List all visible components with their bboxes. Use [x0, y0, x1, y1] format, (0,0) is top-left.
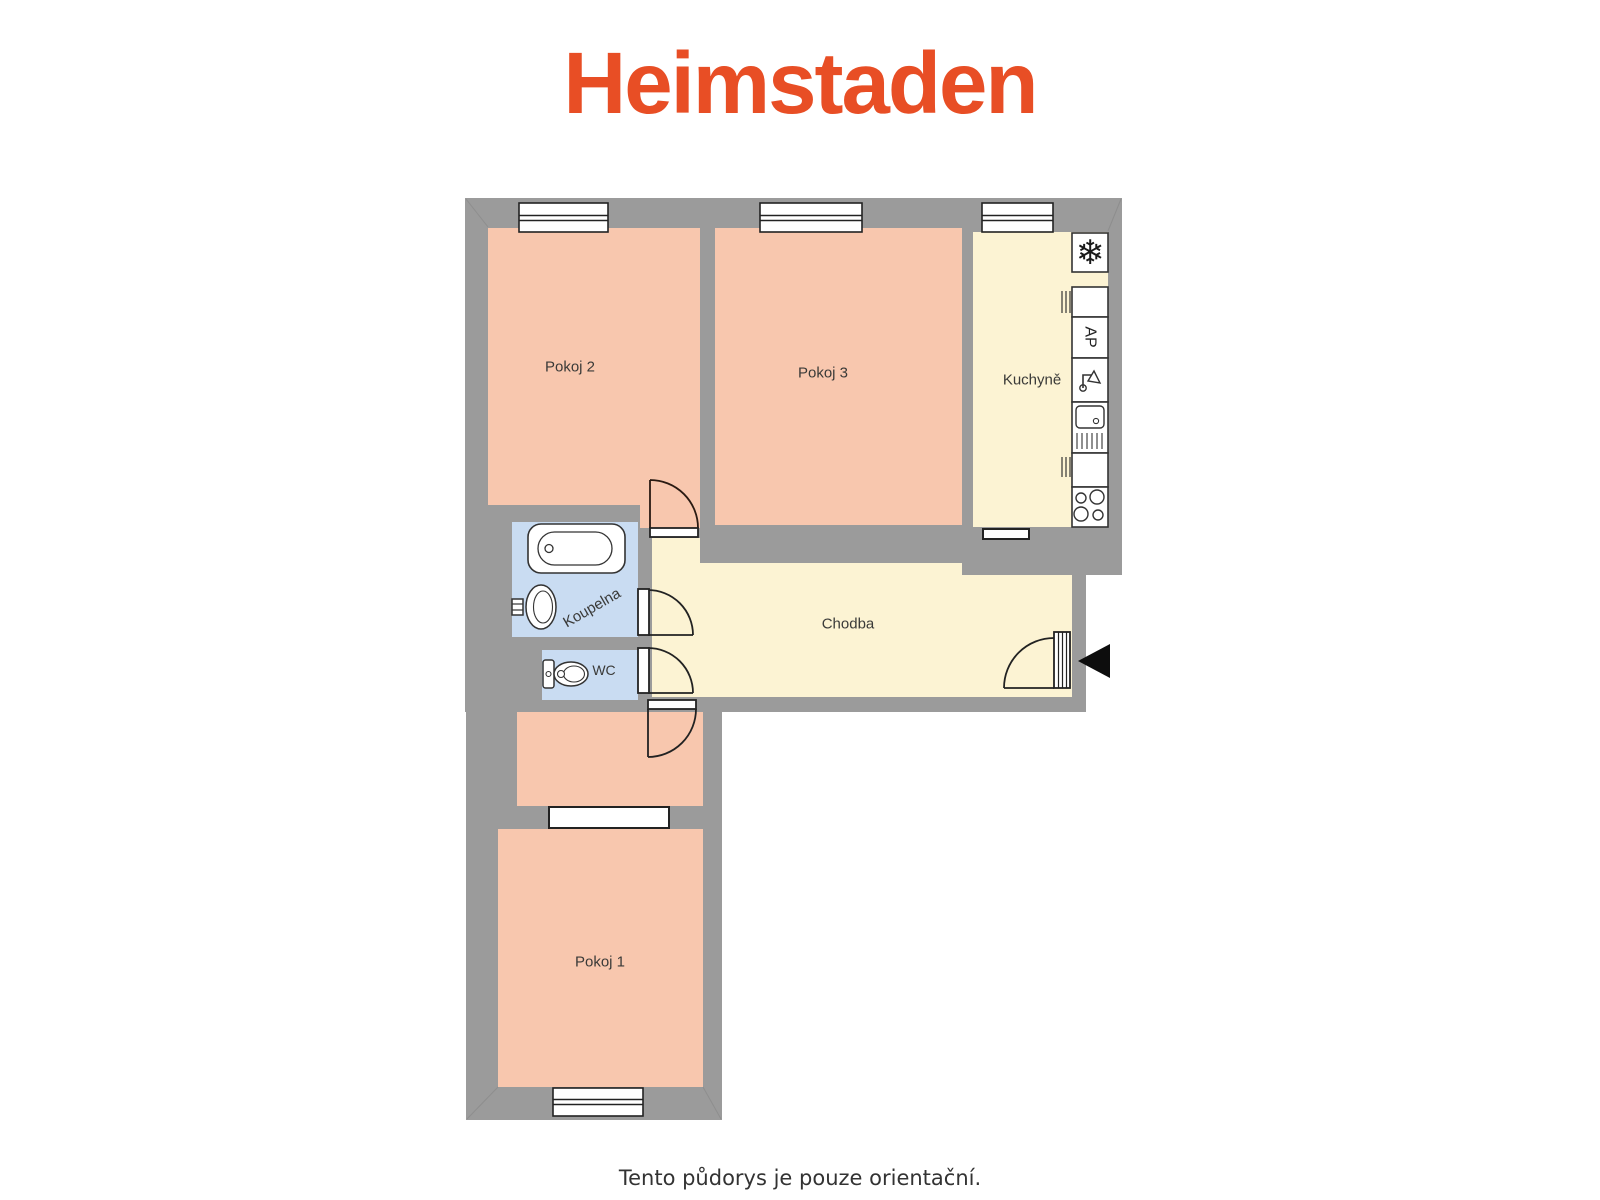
floorplan-page: Heimstaden — [0, 0, 1600, 1200]
bathtub-icon — [528, 524, 625, 573]
door-entrance — [1004, 632, 1070, 688]
door-wc — [638, 648, 693, 693]
window-pokoj1 — [553, 1088, 643, 1116]
plan-symbols: ❄ AP — [0, 0, 1600, 1200]
snowflake-fridge-icon: ❄ — [1072, 233, 1108, 273]
svg-text:AP: AP — [1082, 326, 1099, 347]
svg-text:❄: ❄ — [1076, 233, 1105, 273]
label-chodba: Chodba — [822, 616, 875, 633]
stove-icon — [1072, 487, 1108, 527]
label-kuchyne: Kuchyně — [1003, 372, 1061, 389]
sink-icon — [1072, 402, 1108, 453]
label-wc: WC — [592, 662, 615, 678]
entrance-arrow-icon — [1078, 644, 1110, 678]
kitchen-counter-2 — [1062, 453, 1108, 487]
label-pokoj3: Pokoj 3 — [798, 365, 848, 382]
faucet-icon — [1072, 358, 1108, 402]
window-pokoj3 — [760, 203, 862, 232]
label-pokoj1: Pokoj 1 — [575, 954, 625, 971]
wall-miter-lines — [466, 199, 1121, 1119]
door-vestibule — [648, 700, 696, 757]
window-pokoj2 — [519, 203, 608, 232]
washbasin-icon — [512, 585, 556, 629]
disclaimer-text: Tento půdorys je pouze orientační. — [619, 1166, 981, 1190]
washer-ap-box: AP — [1072, 317, 1108, 358]
label-pokoj2: Pokoj 2 — [545, 359, 595, 376]
door-pokoj2 — [650, 480, 698, 537]
door-koupelna — [638, 589, 693, 635]
kitchen-counter-1 — [1062, 287, 1108, 317]
toilet-icon — [543, 660, 588, 688]
window-kuchyne — [982, 203, 1053, 232]
